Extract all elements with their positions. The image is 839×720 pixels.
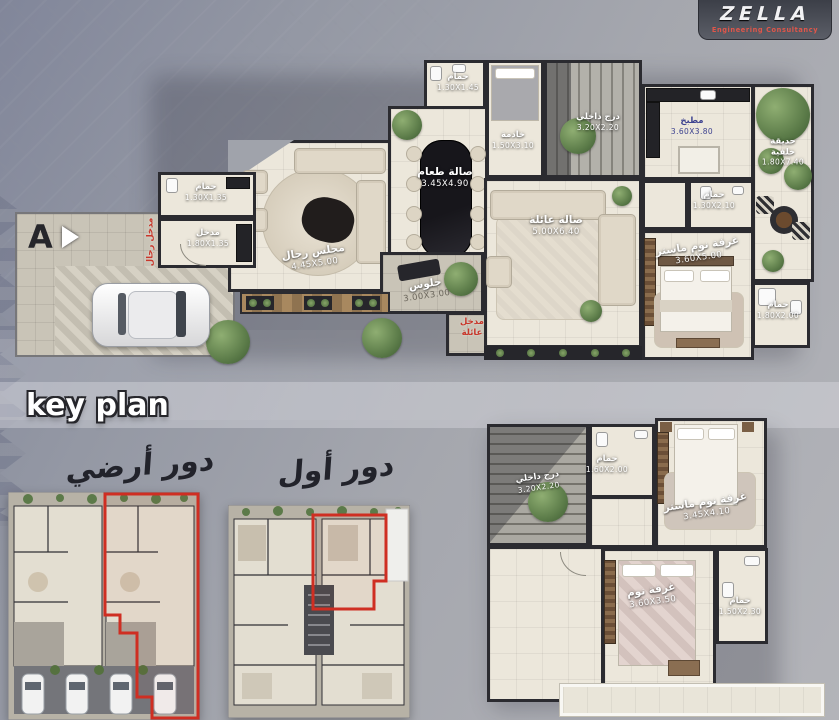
- landing: [589, 496, 655, 548]
- kitchen-island: [678, 146, 720, 174]
- toilet-icon: [596, 432, 608, 447]
- room-name: مدخل: [196, 228, 220, 238]
- label-family-entrance: مدخل عائلة: [457, 317, 487, 339]
- section-marker: A: [28, 218, 53, 256]
- bedroom-dresser: [668, 660, 700, 676]
- toilet-icon: [166, 178, 178, 193]
- room-dim: 1.80X2.00: [757, 311, 799, 320]
- label-ground-floor: دور أرضي: [65, 443, 216, 489]
- garden-bush-3: [762, 250, 784, 272]
- entrance-console: [236, 224, 252, 262]
- label-bath-first-bottom: حمام 1.50X2.30: [719, 596, 761, 616]
- bedroom-pillow-2: [660, 564, 694, 577]
- room-dim: 1.50X2.30: [719, 607, 761, 616]
- label-top-bath: حمام 1.30X1.45: [437, 72, 479, 92]
- label-stairs-ground: درج داخلي 3.20X2.20: [576, 112, 620, 132]
- entry-bath-vanity: [226, 177, 250, 189]
- room-dim: 5.00X6.40: [529, 227, 583, 238]
- room-name: خادمة: [501, 130, 525, 140]
- room-name: مطبخ: [680, 116, 703, 126]
- label-dining: صالة طعام 3.45X4.90: [417, 166, 473, 190]
- room-name: حمام: [767, 300, 788, 310]
- nightstand-2: [742, 422, 754, 432]
- bedroom-pillow-1: [622, 564, 656, 577]
- maid-pillow: [495, 68, 535, 79]
- room-dim: 1.30X1.35: [185, 193, 227, 202]
- family-plant-1: [612, 186, 632, 206]
- family-sofa-right: [598, 214, 636, 306]
- courtyard-tree: [206, 320, 250, 364]
- room-dim: 1.80X1.35: [187, 239, 229, 248]
- master-pillow-1: [664, 270, 694, 282]
- deck-planter-3: [352, 296, 380, 310]
- dining-table: [420, 140, 472, 258]
- sink-icon: [634, 430, 648, 439]
- label-bath-kitchen: حمام 1.30X2.10: [693, 190, 735, 210]
- room-dim: 3.20X2.20: [576, 123, 620, 132]
- room-name: حمام: [729, 596, 750, 606]
- dining-chair: [470, 146, 486, 162]
- label-garden: حديقة خلفية 1.80X7.40: [761, 137, 805, 168]
- car-roof: [128, 291, 178, 339]
- logo: ZELLA Engineering Consultancy: [698, 0, 832, 40]
- label-bath-first-top: حمام 1.60X2.00: [586, 454, 628, 474]
- garden-chair-2: [792, 222, 810, 240]
- room-dim: 1.50X3.10: [492, 141, 534, 150]
- label-entrance: مدخل 1.80X1.35: [187, 228, 229, 248]
- room-dim: 1.60X2.00: [586, 465, 628, 474]
- room-name: درج داخلي: [576, 112, 620, 122]
- roof-terrace: [560, 684, 824, 716]
- dining-chair: [406, 206, 422, 222]
- majlis-sofa-top: [294, 148, 386, 174]
- label-first-floor: دور أول: [277, 448, 396, 491]
- dining-plant: [392, 110, 422, 140]
- deck-planter-2: [304, 296, 332, 310]
- floor-plan-sheet: ZELLA Engineering Consultancy: [0, 0, 839, 720]
- deck-planter-1: [246, 296, 274, 310]
- room-dim: 3.60X3.80: [671, 127, 713, 136]
- sink-icon: [744, 556, 760, 566]
- master-first-pillow-1: [677, 428, 704, 440]
- family-armchair: [486, 256, 512, 288]
- room-dim: 1.30X1.45: [437, 83, 479, 92]
- car-windshield: [176, 291, 186, 337]
- room-dim: 1.80X7.40: [761, 158, 805, 167]
- hall-first: [487, 546, 604, 702]
- label-kitchen: مطبخ 3.60X3.80: [671, 116, 713, 136]
- keyplan-ground-svg: [8, 492, 200, 720]
- keyplan-first-svg: [228, 505, 410, 718]
- garden-chair-1: [756, 196, 774, 214]
- room-name: حديقة خلفية: [770, 137, 796, 158]
- label-entry-bath: حمام 1.30X1.35: [185, 182, 227, 202]
- keyplan-title: key plan: [26, 388, 169, 423]
- logo-brand: ZELLA: [717, 5, 812, 24]
- master-first-pillow-2: [708, 428, 735, 440]
- kitchen-counter-left: [646, 102, 660, 158]
- room-name: حمام: [596, 454, 617, 464]
- section-arrow-icon: [62, 226, 79, 248]
- family-plant-2: [580, 300, 602, 322]
- master-throw: [660, 300, 732, 312]
- family-planter: [484, 346, 642, 360]
- room-dim: 1.30X2.10: [693, 201, 735, 210]
- label-master-bath: حمام 1.80X2.00: [757, 300, 799, 320]
- kitchen-sink: [700, 90, 716, 100]
- kitchen-counter-top: [646, 88, 750, 102]
- dining-chair: [406, 234, 422, 250]
- stairs-shadow: [547, 63, 571, 175]
- dining-chair: [406, 146, 422, 162]
- corridor: [642, 180, 688, 230]
- room-name: صالة عائلة: [529, 214, 583, 226]
- label-men-entrance: مدخل رجال: [145, 218, 156, 266]
- room-dim: 3.45X4.90: [417, 179, 473, 190]
- room-name: حمام: [195, 182, 216, 192]
- room-name: صالة طعام: [417, 166, 473, 178]
- label-maid: خادمة 1.50X3.10: [492, 130, 534, 150]
- label-family-hall: صالة عائلة 5.00X6.40: [529, 214, 583, 238]
- bedroom-wardrobe: [604, 560, 616, 644]
- garden-tree: [756, 88, 810, 142]
- master-pillow-2: [700, 270, 730, 282]
- path-tree: [362, 318, 402, 358]
- room-name: حمام: [447, 72, 468, 82]
- master-bench: [676, 338, 720, 348]
- keyplan-thumb-ground: [8, 492, 200, 720]
- keyplan-thumb-first: [228, 505, 410, 718]
- logo-subtitle: Engineering Consultancy: [712, 26, 818, 34]
- car-rear-glass: [118, 293, 126, 335]
- room-name: حمام: [703, 190, 724, 200]
- nightstand-1: [660, 422, 672, 432]
